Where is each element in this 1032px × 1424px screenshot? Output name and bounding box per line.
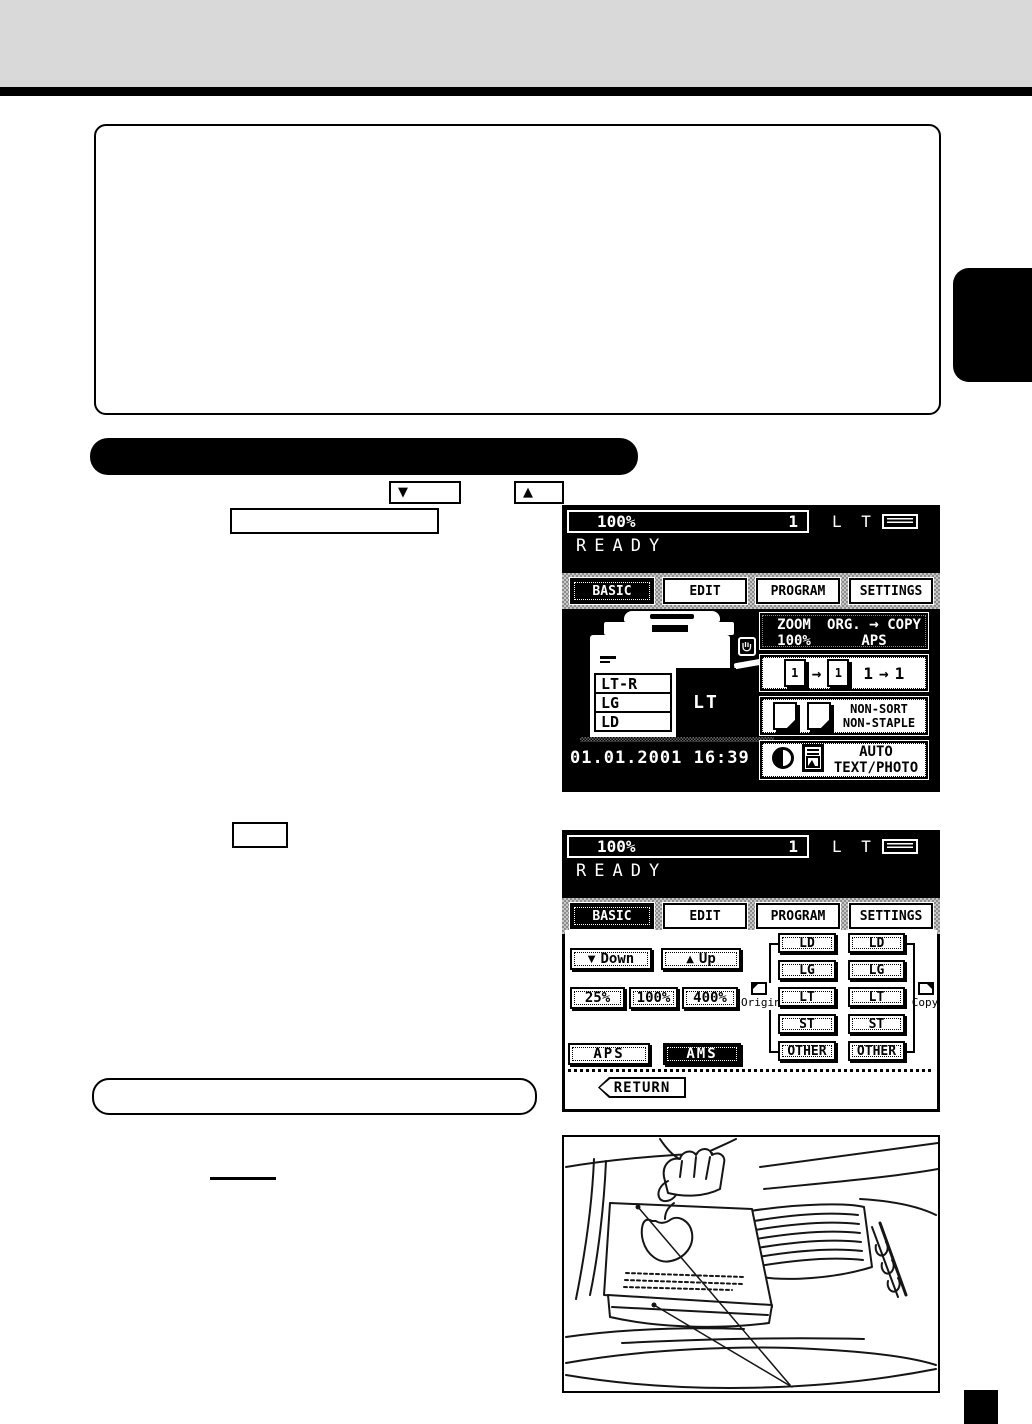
down-key-button[interactable]: ▼: [389, 481, 461, 504]
return-button[interactable]: RETURN: [598, 1077, 686, 1098]
zoom-up-button[interactable]: ▲ Up: [661, 948, 741, 970]
copy-page-icon: 1: [827, 659, 849, 687]
arrow-right-icon: →: [869, 614, 879, 633]
tab-strip: BASIC EDIT PROGRAM SETTINGS: [562, 573, 940, 609]
image-mode-button[interactable]: AUTO TEXT/PHOTO: [759, 740, 929, 780]
original-side-label: Original: [741, 996, 779, 1009]
hand-feed-icon: [738, 637, 756, 656]
zoom-down-button[interactable]: ▼ Down: [570, 948, 652, 970]
tab-edit[interactable]: EDIT: [663, 903, 747, 929]
copy-count-readout: 1: [788, 837, 798, 856]
up-label: Up: [699, 951, 716, 967]
section-banner: [90, 438, 638, 475]
drawer-label: LD: [601, 713, 619, 731]
copier-logo-mark: [600, 656, 616, 659]
drawer-button-lg[interactable]: LG: [594, 692, 672, 713]
panel-divider: [568, 1069, 931, 1072]
copy-size-other-button[interactable]: OTHER: [848, 1041, 905, 1061]
tip-box: [92, 1078, 537, 1115]
zoom-apms-button[interactable]: ZOOM ORG. → COPY 100% APS: [759, 612, 929, 650]
copy-size-lg-button[interactable]: LG: [848, 960, 905, 980]
return-label: RETURN: [614, 1080, 671, 1096]
paper-stack-icon: [882, 514, 918, 529]
status-bar: 100% 1: [567, 510, 809, 533]
zoom-ratio-readout: 100%: [597, 837, 636, 856]
grouped-pages-icon: [807, 702, 831, 730]
lcd-screen-basic: 100% 1 L T READY BASIC EDIT PROGRAM SETT…: [562, 505, 940, 792]
original-size-other-button[interactable]: OTHER: [778, 1041, 836, 1061]
tab-settings[interactable]: SETTINGS: [849, 903, 933, 929]
original-page-icon: [751, 982, 767, 995]
ams-button[interactable]: AMS: [663, 1043, 741, 1065]
tab-settings[interactable]: SETTINGS: [849, 578, 933, 604]
org-label: ORG.: [827, 617, 861, 633]
aps-button[interactable]: APS: [568, 1043, 650, 1065]
preset-25-button[interactable]: 25%: [570, 987, 625, 1009]
up-triangle-icon: ▲: [686, 954, 694, 965]
copy-size-ld-button[interactable]: LD: [848, 933, 905, 953]
datetime-readout: 01.01.2001 16:39: [570, 748, 750, 768]
paper-size-readout: L T: [832, 837, 876, 856]
drawer-label: LG: [601, 694, 619, 712]
up-key-button[interactable]: ▲: [514, 481, 564, 504]
arrow-right-icon: →: [812, 664, 822, 683]
tab-edit[interactable]: EDIT: [663, 578, 747, 604]
copy-label: COPY: [887, 617, 921, 633]
selected-paper-label: LT: [693, 692, 719, 713]
preset-100-button[interactable]: 100%: [629, 987, 678, 1009]
zoom-ratio-readout: 100%: [597, 512, 636, 531]
ready-message: READY: [576, 861, 667, 881]
text-underline: [210, 1177, 276, 1180]
copy-page-icon: [918, 982, 934, 995]
drawer-button-lt-r[interactable]: LT-R: [594, 673, 672, 694]
sort-line2: NON-STAPLE: [843, 716, 915, 730]
down-label: Down: [600, 951, 634, 967]
page-number-block: [964, 1390, 998, 1424]
paper-stack-icon: [882, 839, 918, 854]
selected-paper-area[interactable]: LT: [676, 668, 736, 737]
copier-deck-graphic: [590, 635, 730, 650]
note-box: ▼ ▲: [94, 124, 941, 415]
down-triangle-icon: ▼: [398, 485, 408, 500]
tab-program[interactable]: PROGRAM: [756, 578, 840, 604]
aps-mode-label: APS: [825, 633, 923, 649]
text-photo-doc-icon: [802, 744, 824, 776]
original-size-ld-button[interactable]: LD: [778, 933, 836, 953]
arrow-right-icon: →: [879, 664, 889, 683]
duplex-mode-button[interactable]: 1 → 1 1 → 1: [759, 654, 929, 692]
down-triangle-icon: ▼: [588, 954, 596, 965]
ready-message: READY: [576, 536, 667, 556]
original-bracket: [769, 1010, 771, 1053]
copy-count-readout: 1: [788, 512, 798, 531]
copier-shadow: [580, 737, 774, 742]
duplex-to: 1: [895, 664, 905, 683]
chapter-edge-tab: [953, 268, 1032, 382]
paper-size-readout: L T: [832, 512, 876, 531]
original-size-st-button[interactable]: ST: [778, 1014, 836, 1034]
header-rule: [0, 87, 1032, 96]
copy-size-lt-button[interactable]: LT: [848, 987, 905, 1007]
inline-key-box-small: [232, 822, 288, 848]
copier-logo-mark2: [600, 661, 610, 663]
zoom-value: 100%: [763, 633, 825, 649]
copy-side-label: Copy: [909, 996, 941, 1009]
original-size-lg-button[interactable]: LG: [778, 960, 836, 980]
status-bar: 100% 1: [567, 835, 809, 858]
feeder-top-graphic: [624, 611, 720, 622]
sort-mode-button[interactable]: NON-SORT NON-STAPLE: [759, 696, 929, 736]
drawer-label: LT-R: [601, 675, 637, 693]
sort-line1: NON-SORT: [850, 702, 908, 716]
manual-page: ▼ ▲ 100% 1 L T READY BASIC EDIT PROGRAM …: [0, 0, 1032, 1424]
copy-size-st-button[interactable]: ST: [848, 1014, 905, 1034]
tab-basic[interactable]: BASIC: [570, 578, 654, 604]
copier-status-graphic: LT LT-R LG LD: [588, 611, 766, 743]
preset-400-button[interactable]: 400%: [682, 987, 738, 1009]
tab-basic[interactable]: BASIC: [570, 903, 654, 929]
inline-key-box: [230, 508, 439, 534]
mode-line2: TEXT/PHOTO: [834, 760, 918, 776]
copy-bracket: [905, 1051, 915, 1053]
feeder-illustration: [562, 1135, 940, 1393]
sorted-pages-icon: [773, 702, 797, 730]
header-band: [0, 0, 1032, 87]
feeder-base-graphic: [604, 622, 734, 635]
duplex-from: 1: [863, 664, 873, 683]
tab-program[interactable]: PROGRAM: [756, 903, 840, 929]
original-page-icon: 1: [784, 659, 806, 687]
zoom-label: ZOOM: [763, 617, 825, 633]
zoom-panel-body: ▼ Down ▲ Up 25% 100% 400% Original Copy …: [565, 930, 937, 1109]
mode-line1: AUTO: [859, 744, 893, 760]
original-size-lt-button[interactable]: LT: [778, 987, 836, 1007]
original-bracket: [769, 943, 771, 983]
drawer-button-ld[interactable]: LD: [594, 711, 672, 732]
contrast-icon: [770, 745, 796, 775]
tab-strip: BASIC EDIT PROGRAM SETTINGS: [562, 898, 940, 934]
up-triangle-icon: ▲: [523, 485, 533, 500]
lcd-screen-zoom: 100% 1 L T READY BASIC EDIT PROGRAM SETT…: [562, 830, 940, 1112]
